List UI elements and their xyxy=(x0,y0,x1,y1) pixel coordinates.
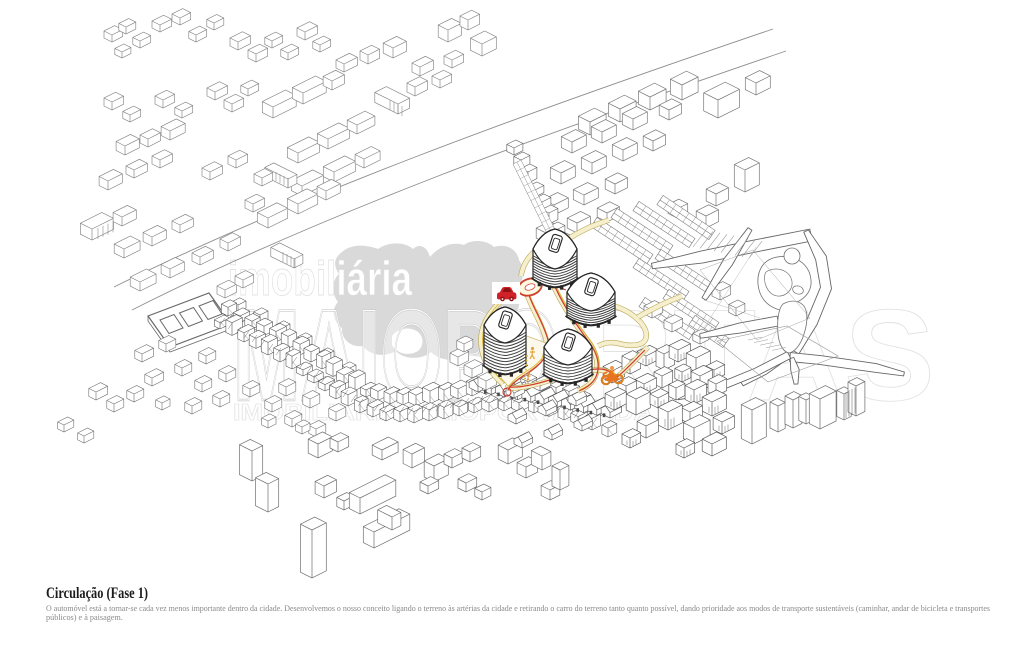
svg-text:imobiliária: imobiliária xyxy=(228,253,412,306)
svg-text:públicos) e à paisagem.: públicos) e à paisagem. xyxy=(46,613,123,622)
svg-text:Circulação (Fase 1): Circulação (Fase 1) xyxy=(46,585,148,602)
svg-text:O automóvel está a tornar-se c: O automóvel está a tornar-se cada vez me… xyxy=(46,604,990,613)
